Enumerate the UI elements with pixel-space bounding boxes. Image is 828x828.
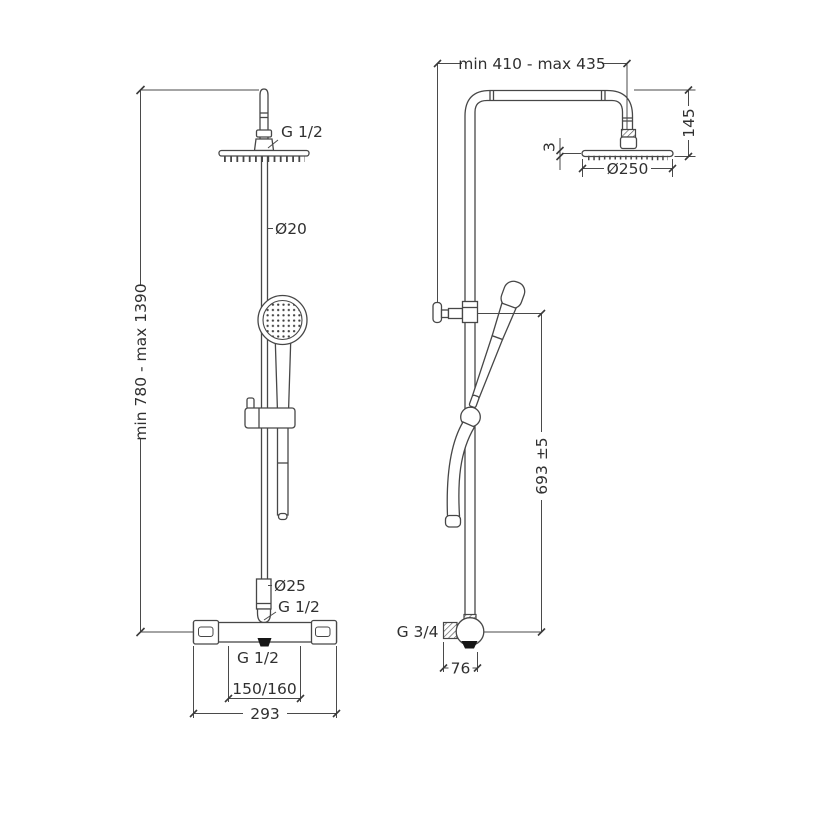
bracket-height-label: 693 ±5 [533,437,551,494]
wall-inlet-connector [444,623,458,639]
front-view: min 780 - max 1390 G 1/2 Ø20 Ø25 G 1/2 G… [131,86,340,723]
front-dia20-label: Ø20 [275,220,307,238]
valve-depth-label: 76 [451,660,471,678]
reach-label: min 410 - max 435 [458,55,605,73]
hand-shower-neck-side [490,303,516,340]
front-height-label-group: min 780 - max 1390 [131,283,150,440]
wall-bracket-side [433,302,478,323]
front-g12-outlet-label: G 1/2 [237,649,279,667]
valve-left-cap [194,621,219,645]
hand-shower-hose-front [278,424,289,515]
head-diameter-label: Ø250 [607,160,649,178]
side-view: min 410 - max 435 145 3 Ø250 693 ±5 G 3/… [397,54,698,678]
valve-width-label: 293 [250,705,280,723]
front-g12-inlet-label: G 1/2 [278,598,320,616]
front-connector-ring [257,130,272,137]
front-height-label: min 780 - max 1390 [132,283,150,440]
front-lower-pipe [257,579,272,609]
port-spacing-label: 150/160 [232,680,296,698]
technical-drawing: min 780 - max 1390 G 1/2 Ø20 Ø25 G 1/2 G… [0,0,828,828]
hand-shower-face-spray [263,301,302,340]
slider-bracket-front [245,408,295,428]
front-shower-head-plate [219,151,309,157]
hand-shower-side [462,279,527,411]
side-shower-head-plate [582,151,673,157]
head-drop-label: 145 [680,108,698,138]
head-drop-label-group: 145 [680,106,699,140]
reach-dim [438,64,628,303]
arm-nut-hatched [622,130,636,138]
bracket-flange [433,303,442,323]
bracket-stem [449,309,463,319]
bracket-neck [442,310,449,318]
head-thickness-label-group: 3 [541,142,559,152]
front-g12-top-label: G 1/2 [281,123,323,141]
arm-joint-marks [490,91,633,122]
front-height-dim-lines [141,90,260,632]
front-riser-pipe [262,156,268,579]
hose-end-cap-side [446,516,461,528]
head-ball-joint [621,137,637,149]
valve-outlet-side [462,641,478,649]
hand-shower-front [245,296,307,520]
hose-side [447,422,474,516]
front-pipe-dome-inlet [258,609,271,623]
drawing-canvas: min 780 - max 1390 G 1/2 Ø20 Ø25 G 1/2 G… [0,0,828,828]
valve-side [444,615,484,649]
hand-shower-tip-side [469,395,480,408]
bracket-height-label-group: 693 ±5 [532,432,551,500]
front-head-collar [255,139,274,151]
valve-front [194,621,337,647]
valve-outlet-front [258,638,272,647]
wall-inlet-label: G 3/4 [397,623,439,641]
front-dia25-label: Ø25 [274,577,306,595]
hose-end-cap-front [279,514,288,520]
bracket-clamp [463,302,478,323]
head-thickness-label: 3 [541,142,559,152]
